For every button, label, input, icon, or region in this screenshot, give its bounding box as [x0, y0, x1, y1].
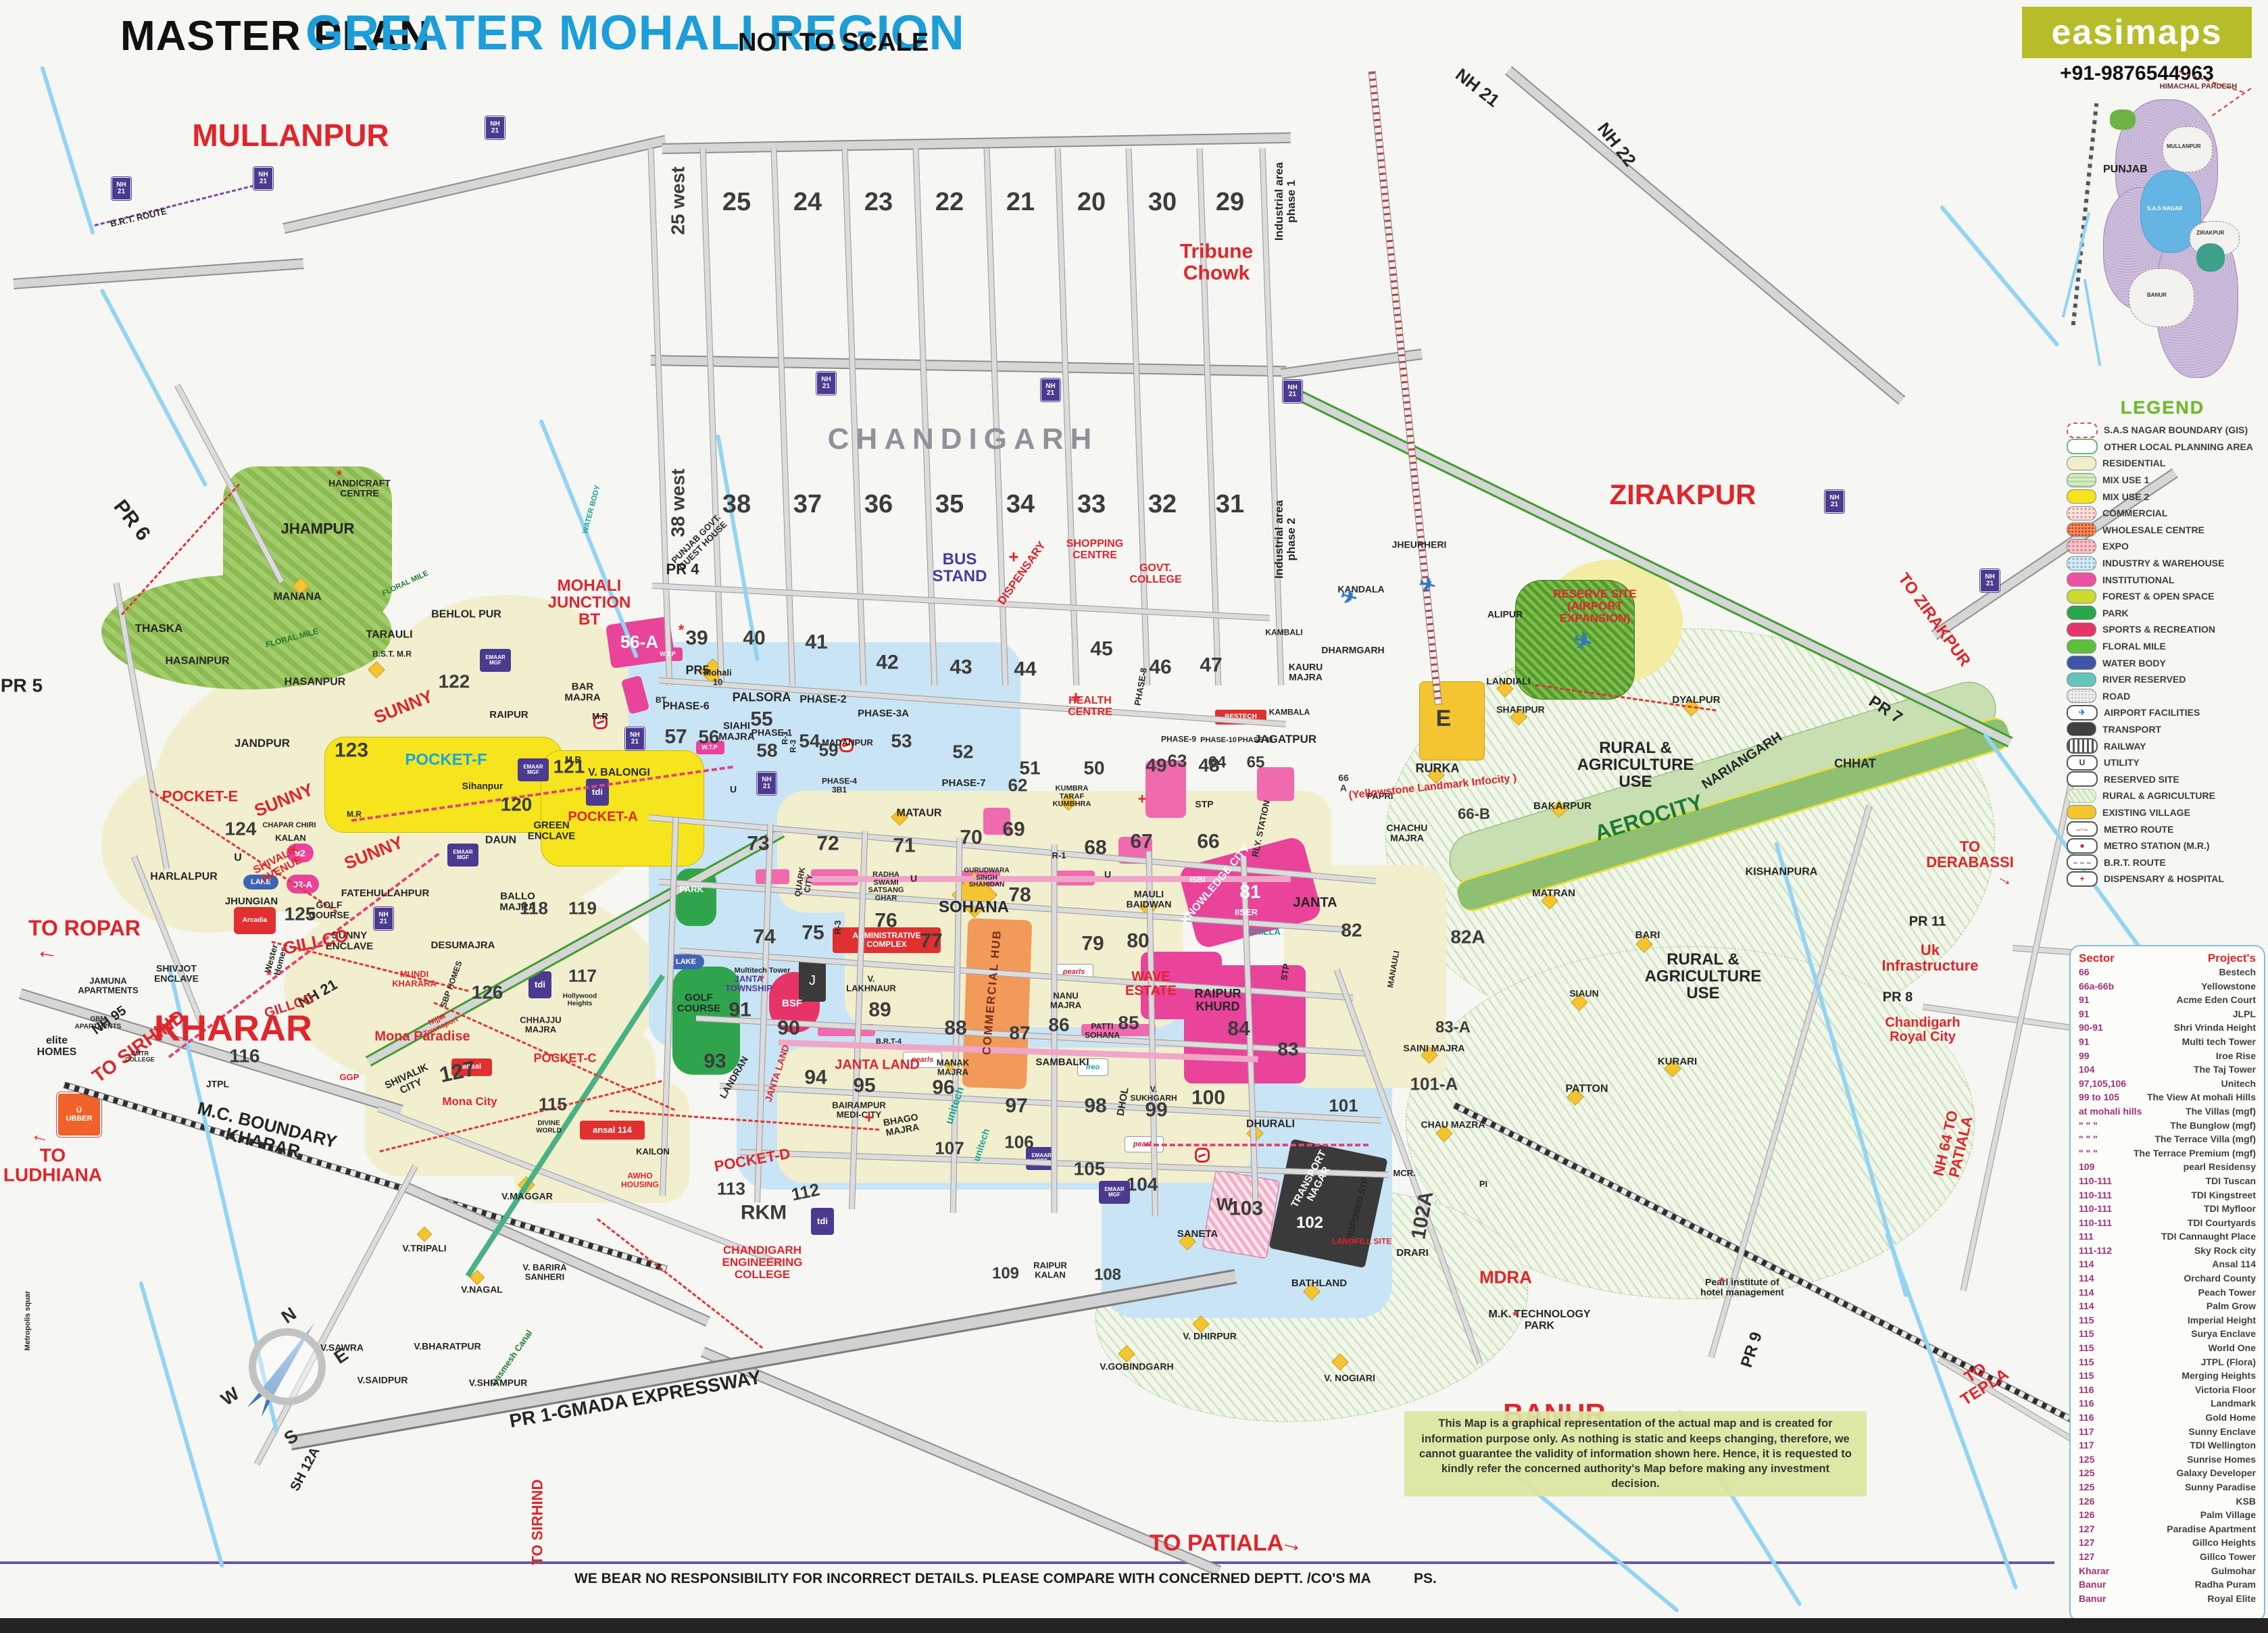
project-sector-cell: 117 [2079, 1426, 2094, 1437]
map-label: PHASE-6 [662, 702, 709, 713]
legend-swatch-whl [2067, 522, 2096, 537]
map-label: 72 [816, 833, 839, 854]
project-sector-cell: 126 [2079, 1509, 2094, 1520]
legend-item-label: WATER BODY [2102, 658, 2166, 668]
legend-item-label: METRO STATION (M.R.) [2104, 840, 2210, 851]
project-sector-cell: 97,105,106 [2079, 1078, 2126, 1089]
map-label: Hollywood Heights [563, 994, 597, 1008]
map-area-purbox: EMAAR MGF [1099, 1181, 1130, 1204]
legend-item: ●METRO STATION (M.R.) [2067, 837, 2264, 854]
table-row: 66Bestech [2079, 967, 2256, 981]
map-label: 46 [1149, 656, 1171, 678]
map-label: 112 [790, 1180, 822, 1204]
table-row: 125Galaxy Developer [2079, 1467, 2256, 1482]
map-label: 47 [1200, 654, 1222, 676]
legend-swatch-vil [2067, 805, 2096, 819]
project-name-cell: Palm Grow [2207, 1300, 2256, 1311]
table-row: 125Sunny Paradise [2079, 1482, 2256, 1496]
map-label: WAVE ESTATE [1125, 970, 1177, 998]
map-label: SAINI MAJRA [1403, 1044, 1464, 1054]
project-name-cell: Sunny Enclave [2188, 1426, 2256, 1437]
map-label: MUNDI KHARARA [392, 969, 437, 988]
map-road-rg [13, 258, 303, 289]
map-area-label: tdi [817, 1217, 828, 1226]
project-name-cell: Royal Elite [2207, 1593, 2256, 1604]
easimaps-logo: easimaps [2022, 7, 2252, 58]
legend-swatch-glyph: U [2079, 758, 2086, 767]
map-label: LANDIALI [1486, 677, 1530, 687]
map-label: KUMBRA TARAF KUMBHRA [1053, 785, 1091, 809]
map-label: * [1512, 1310, 1518, 1324]
project-name-cell: The Taj Tower [2194, 1064, 2256, 1075]
project-sector-cell: " " " [2079, 1120, 2098, 1131]
map-label: PR 9 [1738, 1330, 1765, 1370]
compass-rose: N E W S [223, 1308, 351, 1443]
legend-item-label: SPORTS & RECREATION [2102, 624, 2215, 635]
project-name-cell: Ansal 114 [2212, 1259, 2256, 1269]
table-row: 116Gold Home [2079, 1412, 2256, 1426]
map-label: 68 [1084, 837, 1106, 858]
map-label: 107 [935, 1139, 964, 1157]
table-row: KhararGulmohar [2079, 1565, 2256, 1580]
map-label: 113 [717, 1179, 745, 1198]
map-area-dark: J [799, 960, 826, 1002]
legend-item-label: FOREST & OPEN SPACE [2102, 591, 2214, 602]
project-name-cell: Peach Tower [2198, 1287, 2256, 1298]
map-label: JHUNGIAN [225, 896, 278, 907]
compass-ring [249, 1328, 326, 1405]
map-label: PI [1479, 1179, 1487, 1189]
project-sector-cell: 90-91 [2079, 1022, 2103, 1033]
legend-item-label: B.R.T. ROUTE [2104, 857, 2166, 868]
map-label: STP [1195, 800, 1213, 810]
legend-item: MIX USE 2 [2067, 488, 2264, 505]
map-label: 49 [1145, 755, 1166, 775]
legend-swatch-mst: ● [2067, 838, 2098, 854]
map-road-wt [139, 1281, 224, 1568]
project-sector-cell: 115 [2079, 1370, 2094, 1381]
legend-item: FLORAL MILE [2067, 638, 2264, 655]
map-label: 69 [1002, 819, 1025, 840]
map-label: ZIRAKPUR [1610, 480, 1756, 510]
map-label: PATTON [1565, 1084, 1608, 1096]
map-label: 58 [756, 740, 777, 760]
map-label: TO LUDHIANA [3, 1146, 102, 1186]
table-row: 117Sunny Enclave [2079, 1426, 2256, 1440]
map-area-redbox: ansal 114 [580, 1121, 645, 1140]
map-label: CHACHU MAJRA [1387, 823, 1428, 842]
map-label: GOLF COURSE [309, 900, 349, 919]
map-label: 80 [1127, 930, 1149, 952]
footer-ps: PS. [1414, 1571, 1437, 1587]
table-row: 110-111TDI Kingstreet [2079, 1190, 2256, 1204]
map-label: Mohali 10 [704, 668, 731, 686]
map-area-pk [756, 869, 789, 884]
map-label: KAMBALA [1269, 708, 1310, 717]
table-row: 111-112Sky Rock city [2079, 1245, 2256, 1259]
legend-item: – – –B.R.T. ROUTE [2067, 854, 2264, 871]
map-label: MATAUR [897, 808, 942, 820]
map-label: 23 [864, 189, 893, 216]
legend-swatch-met: –·– [2067, 821, 2098, 837]
project-sector-cell: 116 [2079, 1398, 2094, 1409]
map-label: BEHLOL PUR [431, 610, 501, 621]
map-label: W.T.P [660, 651, 676, 657]
map-road-met [1145, 1144, 1369, 1146]
legend-item: –·–METRO ROUTE [2067, 821, 2264, 837]
map-road-rg [1505, 66, 1905, 405]
map-label: 126 [472, 982, 503, 1002]
map-label: POCKET-C [533, 1052, 596, 1065]
legend-swatch-uti: U [2067, 755, 2098, 771]
map-label: SHOPPING CENTRE [1066, 539, 1123, 562]
legend-swatch-mix2 [2067, 489, 2096, 504]
project-sector-cell: 116 [2079, 1384, 2094, 1395]
map-label: 59 [819, 741, 839, 759]
map-road-rs [771, 148, 796, 685]
project-sector-cell: 66a-66b [2079, 981, 2114, 992]
project-sector-cell: 125 [2079, 1482, 2094, 1492]
map-label: DESUMAJRA [430, 940, 495, 951]
map-label: ALIPUR [1487, 610, 1523, 620]
map-label: + [864, 1109, 874, 1126]
project-name-cell: Shri Vrinda Height [2174, 1022, 2256, 1033]
legend-item-label: FLORAL MILE [2102, 641, 2166, 652]
project-sector-cell: 127 [2079, 1524, 2094, 1534]
project-sector-cell: 127 [2079, 1537, 2094, 1548]
map-label: BAIRAMPUR MEDI-CITY [832, 1100, 885, 1119]
project-sector-cell: 91 [2079, 994, 2090, 1005]
map-label: 96 [932, 1077, 954, 1098]
project-name-cell: Galaxy Developer [2176, 1467, 2256, 1478]
legend-item-label: ROAD [2102, 691, 2130, 702]
map-label: PHASE-3A [858, 708, 909, 719]
map-label: ISBI [1189, 876, 1205, 885]
map-label: 22 [935, 189, 964, 216]
map-label: BT [656, 696, 666, 705]
map-label: SAMBALKI [1035, 1057, 1089, 1068]
map-label: CMTR COLLEGE [125, 1051, 155, 1064]
map-label: 109 [992, 1265, 1019, 1282]
project-sector-cell: 99 [2079, 1050, 2090, 1061]
map-road-rgx [289, 1269, 1237, 1451]
legend-item-label: WHOLESALE CENTRE [2102, 525, 2204, 535]
legend-item: FOREST & OPEN SPACE [2067, 588, 2264, 605]
map-label: Sihanpur [462, 781, 503, 791]
project-name-cell: Paradise Apartment [2167, 1524, 2256, 1534]
map-label: BAR MAJRA [564, 681, 600, 703]
map-label: RKM [741, 1202, 787, 1223]
map-label: 123 [335, 739, 368, 761]
project-name-cell: TDI Wellington [2190, 1440, 2256, 1451]
map-label: 32 [1148, 491, 1177, 518]
project-sector-cell: at mohali hills [2079, 1106, 2142, 1117]
nh21-shield: NH 21 [816, 372, 836, 395]
map-label: 124 [225, 819, 257, 838]
map-label: RAIPUR KHURD [1194, 988, 1241, 1013]
map-label: 20 [1077, 189, 1106, 216]
legend-swatch-dis: + [2067, 871, 2098, 887]
table-row: 115Imperial Height [2079, 1315, 2256, 1329]
map-label: M.K. TECHNOLOGY PARK [1488, 1309, 1590, 1332]
inset-teal-patch [2196, 243, 2225, 272]
map-label: RURAL & AGRICULTURE USE [1645, 951, 1762, 1002]
map-area-vd [417, 1227, 433, 1242]
legend-item-label: INSTITUTIONAL [2102, 575, 2175, 585]
map-label: SOHANA [939, 898, 1009, 915]
map-label: 104 [1127, 1174, 1158, 1194]
map-label: * [337, 469, 342, 483]
map-label: V. BARIRA SANHERI [522, 1263, 566, 1281]
table-row: 111TDI Cannaught Place [2079, 1231, 2256, 1245]
table-row: 114Ansal 114 [2079, 1259, 2256, 1273]
master-plan-map-page: JEMAAR MGFEMAAR MGFEMAAR MGFEMAAR MGFEMA… [0, 0, 2268, 1633]
legend-item-label: EXISTING VILLAGE [2102, 807, 2190, 818]
nh21-shield: NH 21 [1980, 569, 2000, 592]
map-label: ← [29, 1123, 53, 1148]
table-row: 109pearl Residensy [2079, 1161, 2256, 1175]
legend-item-label: AIRPORT FACILITIES [2104, 707, 2200, 718]
map-label: DHARMGARH [1321, 645, 1384, 656]
table-row: 115JTPL (Flora) [2079, 1357, 2256, 1371]
map-label: V.TRIPALI [402, 1244, 446, 1254]
legend-item-label: MIX USE 2 [2102, 491, 2149, 502]
map-label: B.R.T-4 [876, 1038, 902, 1046]
table-row: 91Acme Eden Court [2079, 994, 2256, 1008]
map-label: 81 [1239, 881, 1260, 901]
map-label: 106 [1004, 1133, 1033, 1151]
map-label: DHURALI [1246, 1119, 1295, 1131]
map-label: MOHALI JUNCTION BT [548, 577, 631, 629]
table-row: 110-111TDI Myfloor [2079, 1203, 2256, 1217]
legend-item: SPORTS & RECREATION [2067, 621, 2264, 638]
table-row: 115Merging Heights [2079, 1370, 2256, 1384]
map-label: TO SIRHIND [529, 1480, 545, 1565]
project-name-cell: TDI Kingstreet [2191, 1190, 2256, 1200]
map-label: U [910, 874, 917, 884]
legend-item-label: RAILWAY [2104, 741, 2146, 752]
table-row: 110-111TDI Courtyards [2079, 1217, 2256, 1232]
table-row: 126KSB [2079, 1496, 2256, 1510]
map-label: TO ROPAR [28, 917, 141, 940]
map-label: 25 [722, 189, 751, 216]
map-label: M.R [592, 712, 608, 721]
map-label: 85 [1118, 1013, 1139, 1032]
map-label: RAIPUR [489, 710, 528, 721]
map-area-label: ansal 114 [593, 1125, 632, 1135]
map-label: 42 [876, 652, 898, 673]
map-label: 83-A [1435, 1019, 1471, 1035]
legend-item-label: UTILITY [2104, 757, 2140, 768]
legend-swatch-rsv [2067, 771, 2098, 787]
legend-item: ✈AIRPORT FACILITIES [2067, 704, 2264, 721]
legend-swatch-air: ✈ [2067, 705, 2098, 721]
map-label: 66 [1197, 831, 1219, 852]
map-label: 117 [568, 967, 597, 985]
project-name-cell: JTPL (Flora) [2201, 1357, 2256, 1367]
map-label: ← [34, 938, 61, 965]
map-label: IISER [1235, 908, 1258, 917]
map-label: BATHLAND [1291, 1278, 1347, 1289]
map-label: * [266, 969, 272, 983]
map-label: MATRAN [1532, 888, 1575, 899]
nh21-shield: NH 21 [757, 772, 776, 795]
project-name-cell: TDI Cannaught Place [2161, 1231, 2256, 1242]
map-label: V.SHIAMPUR [469, 1378, 528, 1388]
table-row: 114Palm Grow [2079, 1300, 2256, 1315]
project-name-cell: Gillco Heights [2192, 1537, 2256, 1548]
map-area-purbox: tdi [811, 1208, 834, 1235]
map-label: V.MAGGAR [501, 1192, 553, 1202]
map-label: DYALPUR [1672, 695, 1720, 706]
legend-item: OTHER LOCAL PLANNING AREA [2067, 439, 2264, 456]
map-label: JANTA [1293, 896, 1337, 910]
map-label: + [1008, 547, 1018, 566]
project-name-cell: Bestech [2219, 967, 2256, 977]
inset-label-himachal: HIMACHAL PARDESH [2141, 82, 2256, 91]
project-sector-cell: 109 [2079, 1161, 2094, 1172]
table-row: 97,105,106Unitech [2079, 1078, 2256, 1092]
legend-item: RURAL & AGRICULTURE [2067, 787, 2264, 804]
map-label: SH 12A [288, 1445, 322, 1494]
map-label: KURARI [1658, 1056, 1697, 1067]
map-label: HASANPUR [285, 677, 346, 689]
map-label: 62 [1008, 776, 1028, 794]
project-sector-cell: 126 [2079, 1496, 2094, 1507]
map-label: 91 [729, 999, 751, 1021]
map-label: PHASE-2 [799, 695, 846, 706]
map-label: MANANA [273, 592, 321, 604]
map-label: 103 [1229, 1198, 1263, 1219]
map-label: M.R [565, 755, 581, 764]
map-label: MANAK MAJRA [937, 1058, 969, 1076]
legend-list: S.A.S NAGAR BOUNDARY (GIS)OTHER LOCAL PL… [2067, 422, 2264, 887]
map-label: R-3 [833, 921, 843, 935]
project-name-cell: Sunrise Homes [2187, 1454, 2256, 1465]
map-label: 67 [1130, 831, 1152, 852]
map-label: 88 [944, 1017, 966, 1039]
project-sector-cell: 125 [2079, 1467, 2094, 1478]
table-row: BanurRadha Puram [2079, 1579, 2256, 1593]
project-sector-cell: 110-111 [2079, 1190, 2112, 1200]
map-label: U [234, 853, 242, 864]
map-label: 66-B [1458, 806, 1490, 821]
map-area-label: J [809, 973, 816, 989]
table-row: " " "The Terrace Villa (mgf) [2079, 1134, 2256, 1148]
map-label: DAUN [485, 835, 516, 847]
project-sector-cell: 111 [2079, 1231, 2094, 1242]
table-row: 127Gillco Heights [2079, 1537, 2256, 1551]
legend-item: TRANSPORT [2067, 721, 2264, 738]
map-label: 77 [920, 930, 942, 952]
legend-swatch-spo [2067, 623, 2096, 637]
inset-river [2084, 279, 2102, 366]
project-sector-cell: 115 [2079, 1342, 2094, 1353]
project-name-cell: TDI Courtyards [2188, 1217, 2256, 1228]
project-name-cell: Gulmohar [2211, 1565, 2256, 1576]
project-sector-cell: 116 [2079, 1412, 2094, 1423]
map-label: 38 [722, 491, 751, 518]
map-label: V.NAGAL [461, 1285, 503, 1295]
map-label: HARLALPUR [150, 872, 218, 883]
project-name-cell: Multi tech Tower [2182, 1036, 2256, 1047]
project-name-cell: Gillco Tower [2200, 1551, 2256, 1562]
map-label: + [1070, 688, 1081, 706]
inset-label-sas-nagar: S.A.S NAGAR [2147, 205, 2182, 212]
project-name-cell: World One [2208, 1342, 2256, 1353]
sector-projects-panel: Sector Project's 66Bestech66a-66bYellows… [2069, 945, 2265, 1622]
table-row: 116Victoria Floor [2079, 1384, 2256, 1398]
map-label: 65 [1247, 754, 1265, 771]
table-row: 114Peach Tower [2079, 1287, 2256, 1301]
legend-item-label: COMMERCIAL [2102, 508, 2167, 518]
legend-swatch-mix1 [2067, 473, 2096, 487]
map-label: GGP [340, 1073, 360, 1082]
map-label: 100 [1191, 1087, 1225, 1108]
project-name-cell: Landmark [2211, 1398, 2256, 1409]
map-label: SHAFIPUR [1496, 705, 1545, 715]
project-sector-cell: 66 [2079, 967, 2090, 977]
legend-swatch-bndred [2067, 422, 2098, 438]
map-label: PHASE-10 [1200, 737, 1237, 745]
map-label: 71 [893, 835, 915, 856]
map-label: BAKARPUR [1533, 801, 1592, 812]
table-row: 116Landmark [2079, 1398, 2256, 1412]
inset-hp-boundary [2212, 88, 2251, 116]
map-label: SHIVJOT ENCLAVE [154, 963, 199, 983]
legend-item-label: EXPO [2102, 541, 2129, 552]
map-label: R-1 [1052, 851, 1066, 860]
project-sector-cell: 91 [2079, 1008, 2090, 1019]
map-label: POCKET-F [405, 751, 487, 768]
table-row: 125Sunrise Homes [2079, 1454, 2256, 1468]
map-label: PALSORA [733, 691, 791, 704]
map-label: CHHAJJU MAJRA [520, 1015, 561, 1033]
legend-item: RESERVED SITE [2067, 771, 2264, 787]
map-label: 76 [874, 910, 897, 931]
map-label: U [1104, 870, 1111, 880]
map-label: 21 [1006, 189, 1035, 216]
project-name-cell: Unitech [2221, 1078, 2256, 1089]
legend-item-label: S.A.S NAGAR BOUNDARY (GIS) [2104, 424, 2248, 435]
inset-label-mullanpur: MULLANPUR [2167, 143, 2201, 149]
map-label: 98 [1084, 1095, 1106, 1117]
map-label: 29 [1216, 189, 1244, 216]
compass-e: E [330, 1344, 352, 1369]
legend-item: S.A.S NAGAR BOUNDARY (GIS) [2067, 422, 2264, 439]
map-label: CHAU MAZRA [1421, 1120, 1485, 1130]
legend-item-label: RURAL & AGRICULTURE [2102, 790, 2215, 801]
legend-item: +DISPENSARY & HOSPITAL [2067, 871, 2264, 887]
project-name-cell: Orchard County [2184, 1273, 2256, 1284]
map-label: RESERVE SITE (AIRPORT EXPANSION) [1553, 588, 1636, 625]
project-sector-cell: 114 [2079, 1300, 2094, 1311]
map-label: DRARI [1396, 1248, 1429, 1259]
map-label: 83 [1277, 1039, 1298, 1058]
project-sector-cell: 110-111 [2079, 1217, 2112, 1228]
map-label: TO DERABASSI [1926, 839, 2014, 870]
map-label: 30 [1148, 189, 1177, 216]
projects-col-project: Project's [2208, 952, 2256, 965]
table-row: 114Orchard County [2079, 1273, 2256, 1287]
legend-item: RAILWAY [2067, 737, 2264, 754]
map-label: BSF [782, 998, 802, 1009]
project-name-cell: TDI Tuscan [2206, 1175, 2256, 1186]
legend-item: RIVER RESERVED [2067, 671, 2264, 688]
map-label: Pearl institute of hotel management [1700, 1277, 1784, 1296]
map-label: CHAPAR CHIRI [262, 822, 316, 830]
map-area-orgbox: Ü UBBER [57, 1092, 101, 1137]
